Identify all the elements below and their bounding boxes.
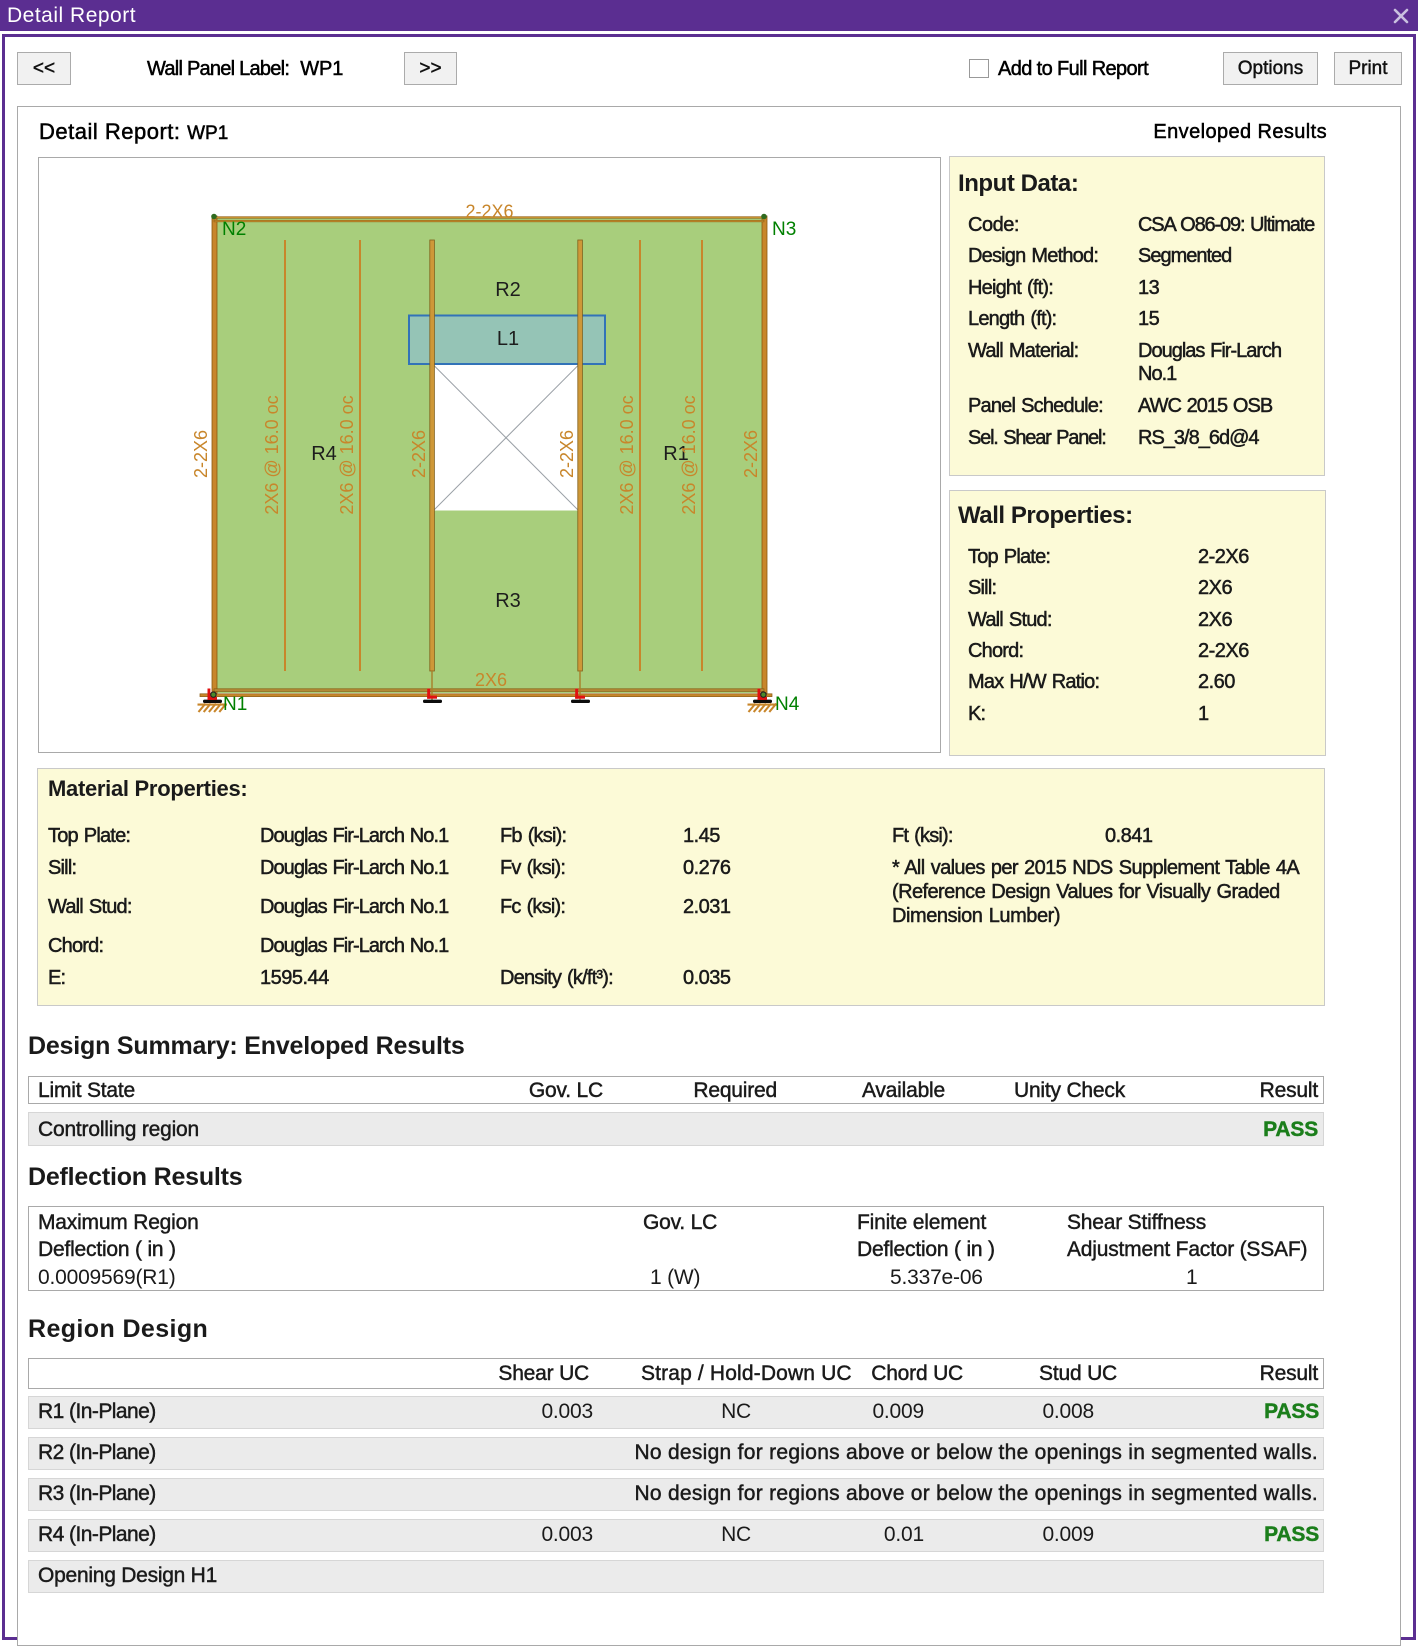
- svg-text:N2: N2: [222, 219, 246, 240]
- svg-text:2X6: 2X6: [475, 670, 507, 690]
- svg-text:2X6 @ 16.0 oc: 2X6 @ 16.0 oc: [679, 395, 699, 514]
- svg-text:L1: L1: [497, 328, 519, 350]
- svg-text:N1: N1: [223, 694, 247, 715]
- svg-text:2X6 @ 16.0 oc: 2X6 @ 16.0 oc: [617, 395, 637, 514]
- svg-text:R2: R2: [495, 279, 521, 301]
- svg-text:2X6 @ 16.0 oc: 2X6 @ 16.0 oc: [262, 395, 282, 514]
- svg-text:N4: N4: [775, 694, 800, 715]
- svg-text:2-2X6: 2-2X6: [409, 430, 429, 478]
- svg-text:2-2X6: 2-2X6: [191, 430, 211, 478]
- svg-text:2-2X6: 2-2X6: [465, 201, 513, 221]
- svg-text:N3: N3: [772, 219, 796, 240]
- svg-text:2-2X6: 2-2X6: [741, 430, 761, 478]
- svg-text:2X6 @ 16.0 oc: 2X6 @ 16.0 oc: [337, 395, 357, 514]
- svg-text:2-2X6: 2-2X6: [557, 430, 577, 478]
- svg-text:R4: R4: [311, 443, 337, 465]
- svg-text:R3: R3: [495, 590, 521, 612]
